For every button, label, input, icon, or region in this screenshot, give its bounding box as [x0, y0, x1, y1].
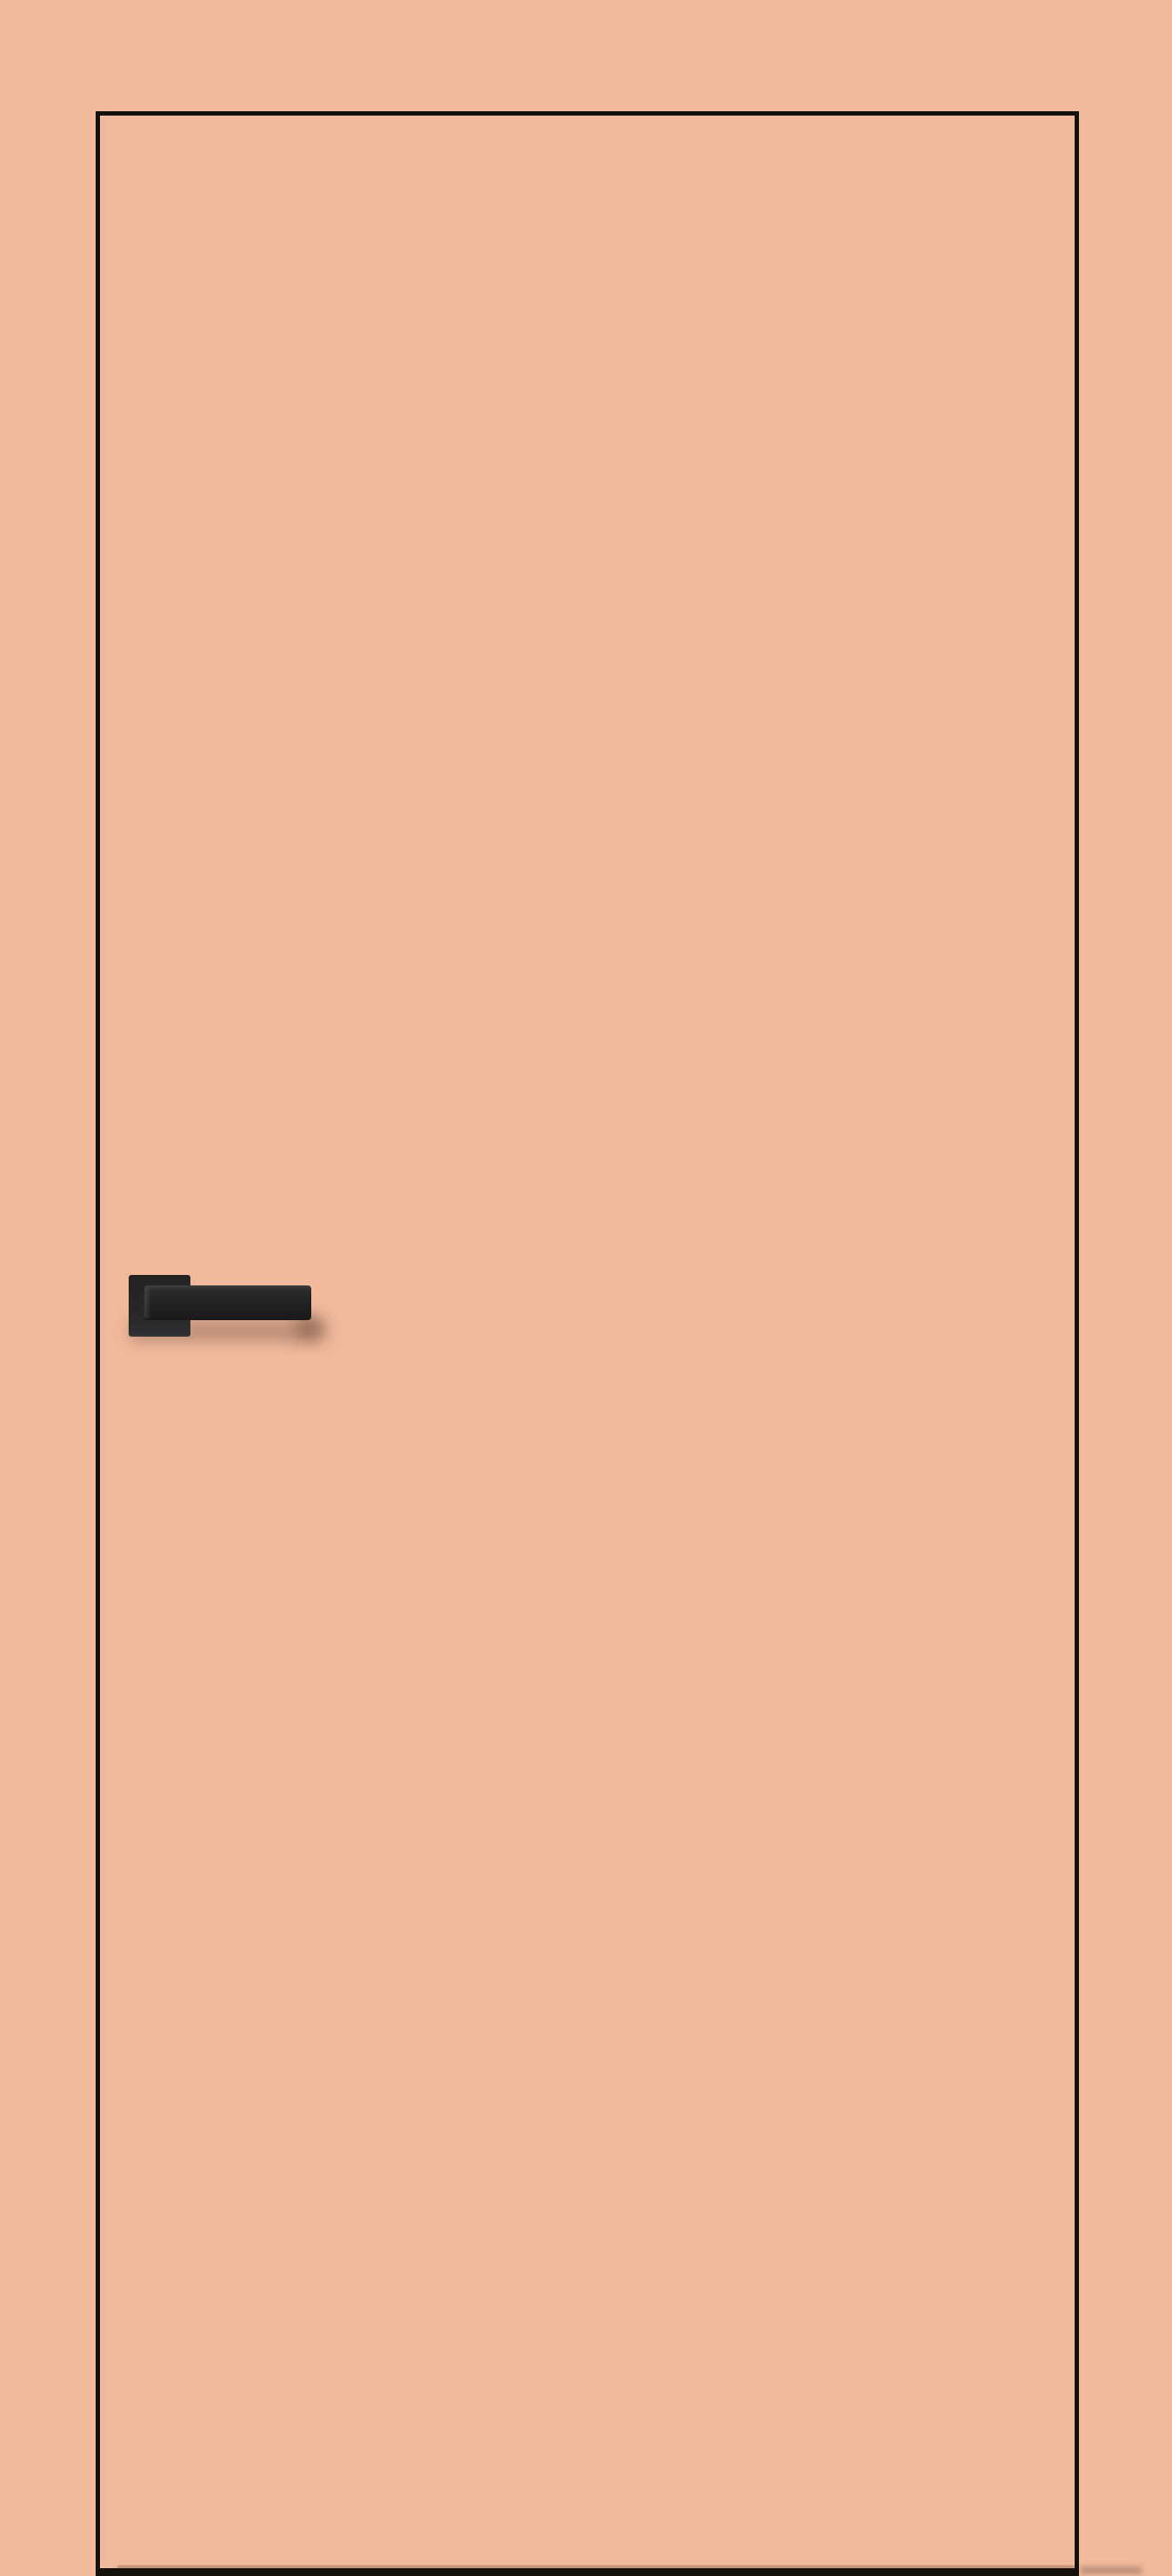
door-leaf: [96, 111, 1079, 2576]
floor-shadow: [1081, 2566, 1142, 2574]
backdrop-wall: [0, 0, 1172, 2576]
door-handle-lever: [144, 1285, 311, 1320]
